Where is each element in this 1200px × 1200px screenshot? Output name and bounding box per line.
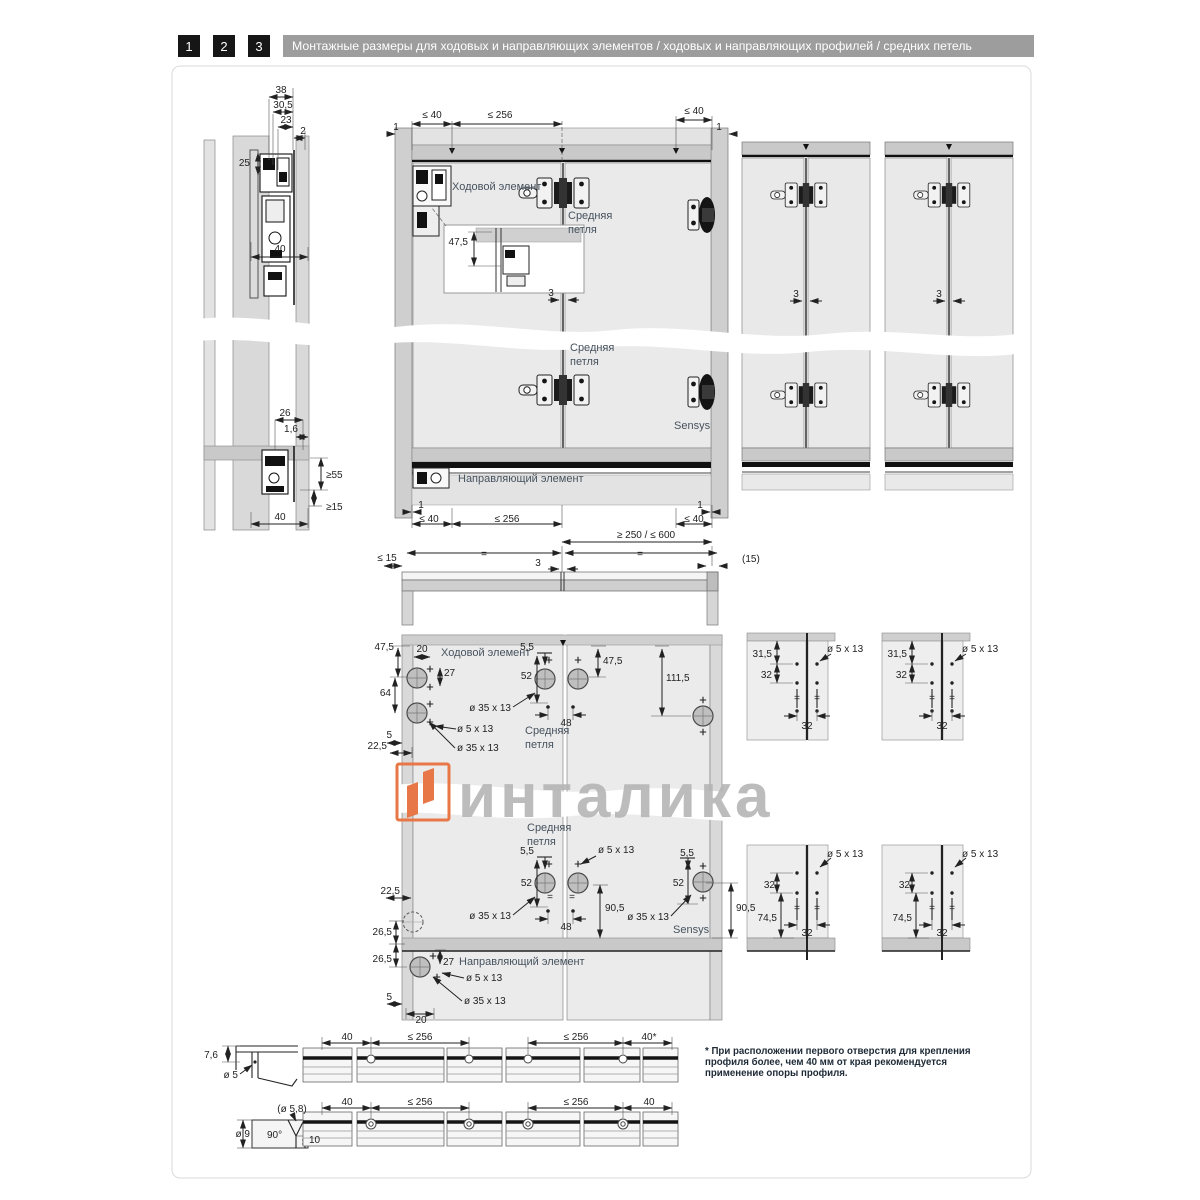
- dimension-label: 1,6: [284, 424, 298, 435]
- component-label: петля: [570, 356, 599, 368]
- dimension-label: 20: [415, 1015, 427, 1026]
- dimension-label: 40: [643, 1097, 655, 1108]
- cabinet-front-pair-2: [742, 142, 870, 490]
- dimension-label: 1: [697, 500, 703, 511]
- dimension-label: 32: [936, 721, 948, 732]
- dimension-label: 40: [274, 512, 286, 523]
- dimension-label: 20: [416, 644, 428, 655]
- dimension-label: ø 5 x 13: [457, 724, 494, 735]
- dimension-label: ø 9: [236, 1129, 251, 1140]
- dimension-label: ≤ 15: [377, 553, 397, 564]
- footnote-line: применение опоры профиля.: [705, 1068, 1015, 1079]
- dimension-label: 47,5: [603, 656, 623, 667]
- dimension-label: 5,5: [520, 642, 534, 653]
- cabinet-front-view: [387, 116, 737, 528]
- dimension-label: 52: [673, 878, 685, 889]
- dimension-label: =: [569, 892, 575, 903]
- dimension-label: 30,5: [273, 100, 293, 111]
- dimension-label: 40: [274, 244, 286, 255]
- profile-drilling-pair-lower-1: [747, 845, 835, 960]
- dimension-label: 90,5: [605, 903, 625, 914]
- dimension-label: 90°: [267, 1130, 282, 1141]
- dimension-label: 3: [548, 288, 554, 299]
- left-profile-section: [204, 88, 328, 530]
- dimension-label: ø 35 x 13: [469, 703, 511, 714]
- dimension-label: 31,5: [753, 649, 773, 660]
- dimension-label: 27: [443, 957, 455, 968]
- dimension-label: ≤ 256: [488, 110, 513, 121]
- component-label: петля: [568, 224, 597, 236]
- dimension-label: =: [949, 903, 955, 914]
- dimension-label: ø 35 x 13: [469, 911, 511, 922]
- dimension-label: ≥15: [326, 502, 343, 513]
- dimension-label: 52: [521, 671, 533, 682]
- component-label: Направляющий элемент: [458, 473, 584, 485]
- dimension-label: ø 35 x 13: [457, 743, 499, 754]
- dimension-label: ≤ 40: [684, 514, 704, 525]
- dimension-label: 3: [936, 289, 942, 300]
- plan-view-row: [384, 542, 726, 625]
- footnote: * При расположении первого отверстия для…: [705, 1046, 1015, 1079]
- dimension-label: ≤ 40: [422, 110, 442, 121]
- dimension-label: 32: [801, 721, 813, 732]
- dimension-label: 26,5: [373, 927, 393, 938]
- footnote-line: профиля более, чем 40 мм от края рекомен…: [705, 1057, 1015, 1068]
- dimension-label: 111,5: [666, 673, 690, 684]
- dimension-label: 7,6: [204, 1050, 218, 1061]
- dimension-label: =: [794, 693, 800, 704]
- dimension-label: 2: [300, 126, 306, 137]
- dimension-label: 47,5: [375, 642, 395, 653]
- dimension-label: ø 5 x 13: [962, 849, 999, 860]
- dimension-label: 32: [899, 880, 911, 891]
- dimension-label: (ø 5,8): [277, 1104, 306, 1115]
- dimension-label: 52: [521, 878, 533, 889]
- dimension-label: ≤ 256: [408, 1097, 433, 1108]
- dimension-label: 1: [418, 500, 424, 511]
- dimension-label: 5: [386, 730, 392, 741]
- dimension-label: 5,5: [680, 848, 694, 859]
- dimension-label: ø 5 x 13: [962, 644, 999, 655]
- dimension-label: 32: [761, 670, 773, 681]
- dimension-label: ø 5 x 13: [598, 845, 635, 856]
- dimension-label: 10: [309, 1135, 321, 1146]
- dimension-label: ≥ 250 / ≤ 600: [617, 530, 676, 541]
- dimension-label: 26,5: [373, 954, 393, 965]
- component-label: Ходовой элемент: [441, 647, 530, 659]
- dimension-label: 31,5: [888, 649, 908, 660]
- dimension-label: ≤ 256: [564, 1032, 589, 1043]
- dimension-label: 48: [560, 922, 572, 933]
- dimension-label: 64: [380, 688, 392, 699]
- dimension-label: ≤ 256: [564, 1097, 589, 1108]
- dimension-label: ≤ 256: [408, 1032, 433, 1043]
- component-label: Средняя: [570, 342, 614, 354]
- catalog-page: { "header": { "steps": ["1","2","3"], "t…: [0, 0, 1200, 1200]
- technical-diagram: инталика 3830,52322540261,6≥55≥15401≤ 40…: [0, 0, 1200, 1200]
- dimension-label: 5: [386, 992, 392, 1003]
- dimension-label: 38: [275, 85, 287, 96]
- component-label: Направляющий элемент: [459, 956, 585, 968]
- dimension-label: 5,5: [520, 846, 534, 857]
- dimension-label: 74,5: [893, 913, 913, 924]
- dimension-label: 90,5: [736, 903, 756, 914]
- dimension-label: ≤ 256: [495, 514, 520, 525]
- dimension-label: 40: [341, 1032, 353, 1043]
- dimension-label: =: [929, 693, 935, 704]
- component-label: Средняя: [525, 725, 569, 737]
- dimension-label: ø 5 x 13: [466, 973, 503, 984]
- watermark-text: инталика: [458, 762, 773, 831]
- dimension-label: 22,5: [381, 886, 401, 897]
- dimension-label: 32: [801, 928, 813, 939]
- dimension-label: =: [794, 903, 800, 914]
- dimension-label: 25: [239, 158, 251, 169]
- dimension-label: ø 5 x 13: [827, 849, 864, 860]
- dimension-label: ø 5: [224, 1070, 239, 1081]
- cabinet-front-pair-3: [885, 142, 1013, 490]
- dimension-label: ø 5 x 13: [827, 644, 864, 655]
- dimension-label: =: [949, 693, 955, 704]
- component-label: Sensys: [673, 924, 710, 936]
- dimension-label: 27: [444, 668, 456, 679]
- dimension-label: 47,5: [449, 237, 469, 248]
- component-label: Ходовой элемент: [452, 181, 541, 193]
- dimension-label: =: [481, 549, 487, 560]
- dimension-label: 22,5: [368, 741, 388, 752]
- dimension-label: 1: [393, 122, 399, 133]
- component-label: Sensys: [674, 420, 711, 432]
- dimension-label: =: [814, 693, 820, 704]
- dimension-label: ≤ 40: [419, 514, 439, 525]
- dimension-label: =: [929, 903, 935, 914]
- dimension-label: ø 35 x 13: [627, 912, 669, 923]
- dimension-label: 1: [716, 122, 722, 133]
- component-label: Средняя: [527, 822, 571, 834]
- dimension-label: =: [637, 549, 643, 560]
- dimension-label: 3: [793, 289, 799, 300]
- dimension-label: 40*: [641, 1032, 656, 1043]
- component-label: петля: [525, 739, 554, 751]
- footnote-line: * При расположении первого отверстия для…: [705, 1046, 1015, 1057]
- dimension-label: 74,5: [758, 913, 778, 924]
- mounting-rail-top: [303, 1037, 678, 1082]
- dimension-label: 32: [764, 880, 776, 891]
- dimension-label: ≥55: [326, 470, 343, 481]
- dimension-label: 40: [341, 1097, 353, 1108]
- dimension-label: (15): [742, 554, 760, 565]
- component-label: Средняя: [568, 210, 612, 222]
- dimension-label: =: [814, 903, 820, 914]
- dimension-label: 26: [279, 408, 291, 419]
- dimension-label: ø 35 x 13: [464, 996, 506, 1007]
- dimension-label: 32: [936, 928, 948, 939]
- dimension-label: =: [547, 892, 553, 903]
- dimension-label: 23: [280, 115, 292, 126]
- dimension-label: 32: [896, 670, 908, 681]
- dimension-label: ≤ 40: [684, 106, 704, 117]
- profile-drilling-pair-lower-2: [882, 845, 970, 960]
- dimension-label: 3: [535, 558, 541, 569]
- mounting-rail-bottom: [303, 1102, 678, 1146]
